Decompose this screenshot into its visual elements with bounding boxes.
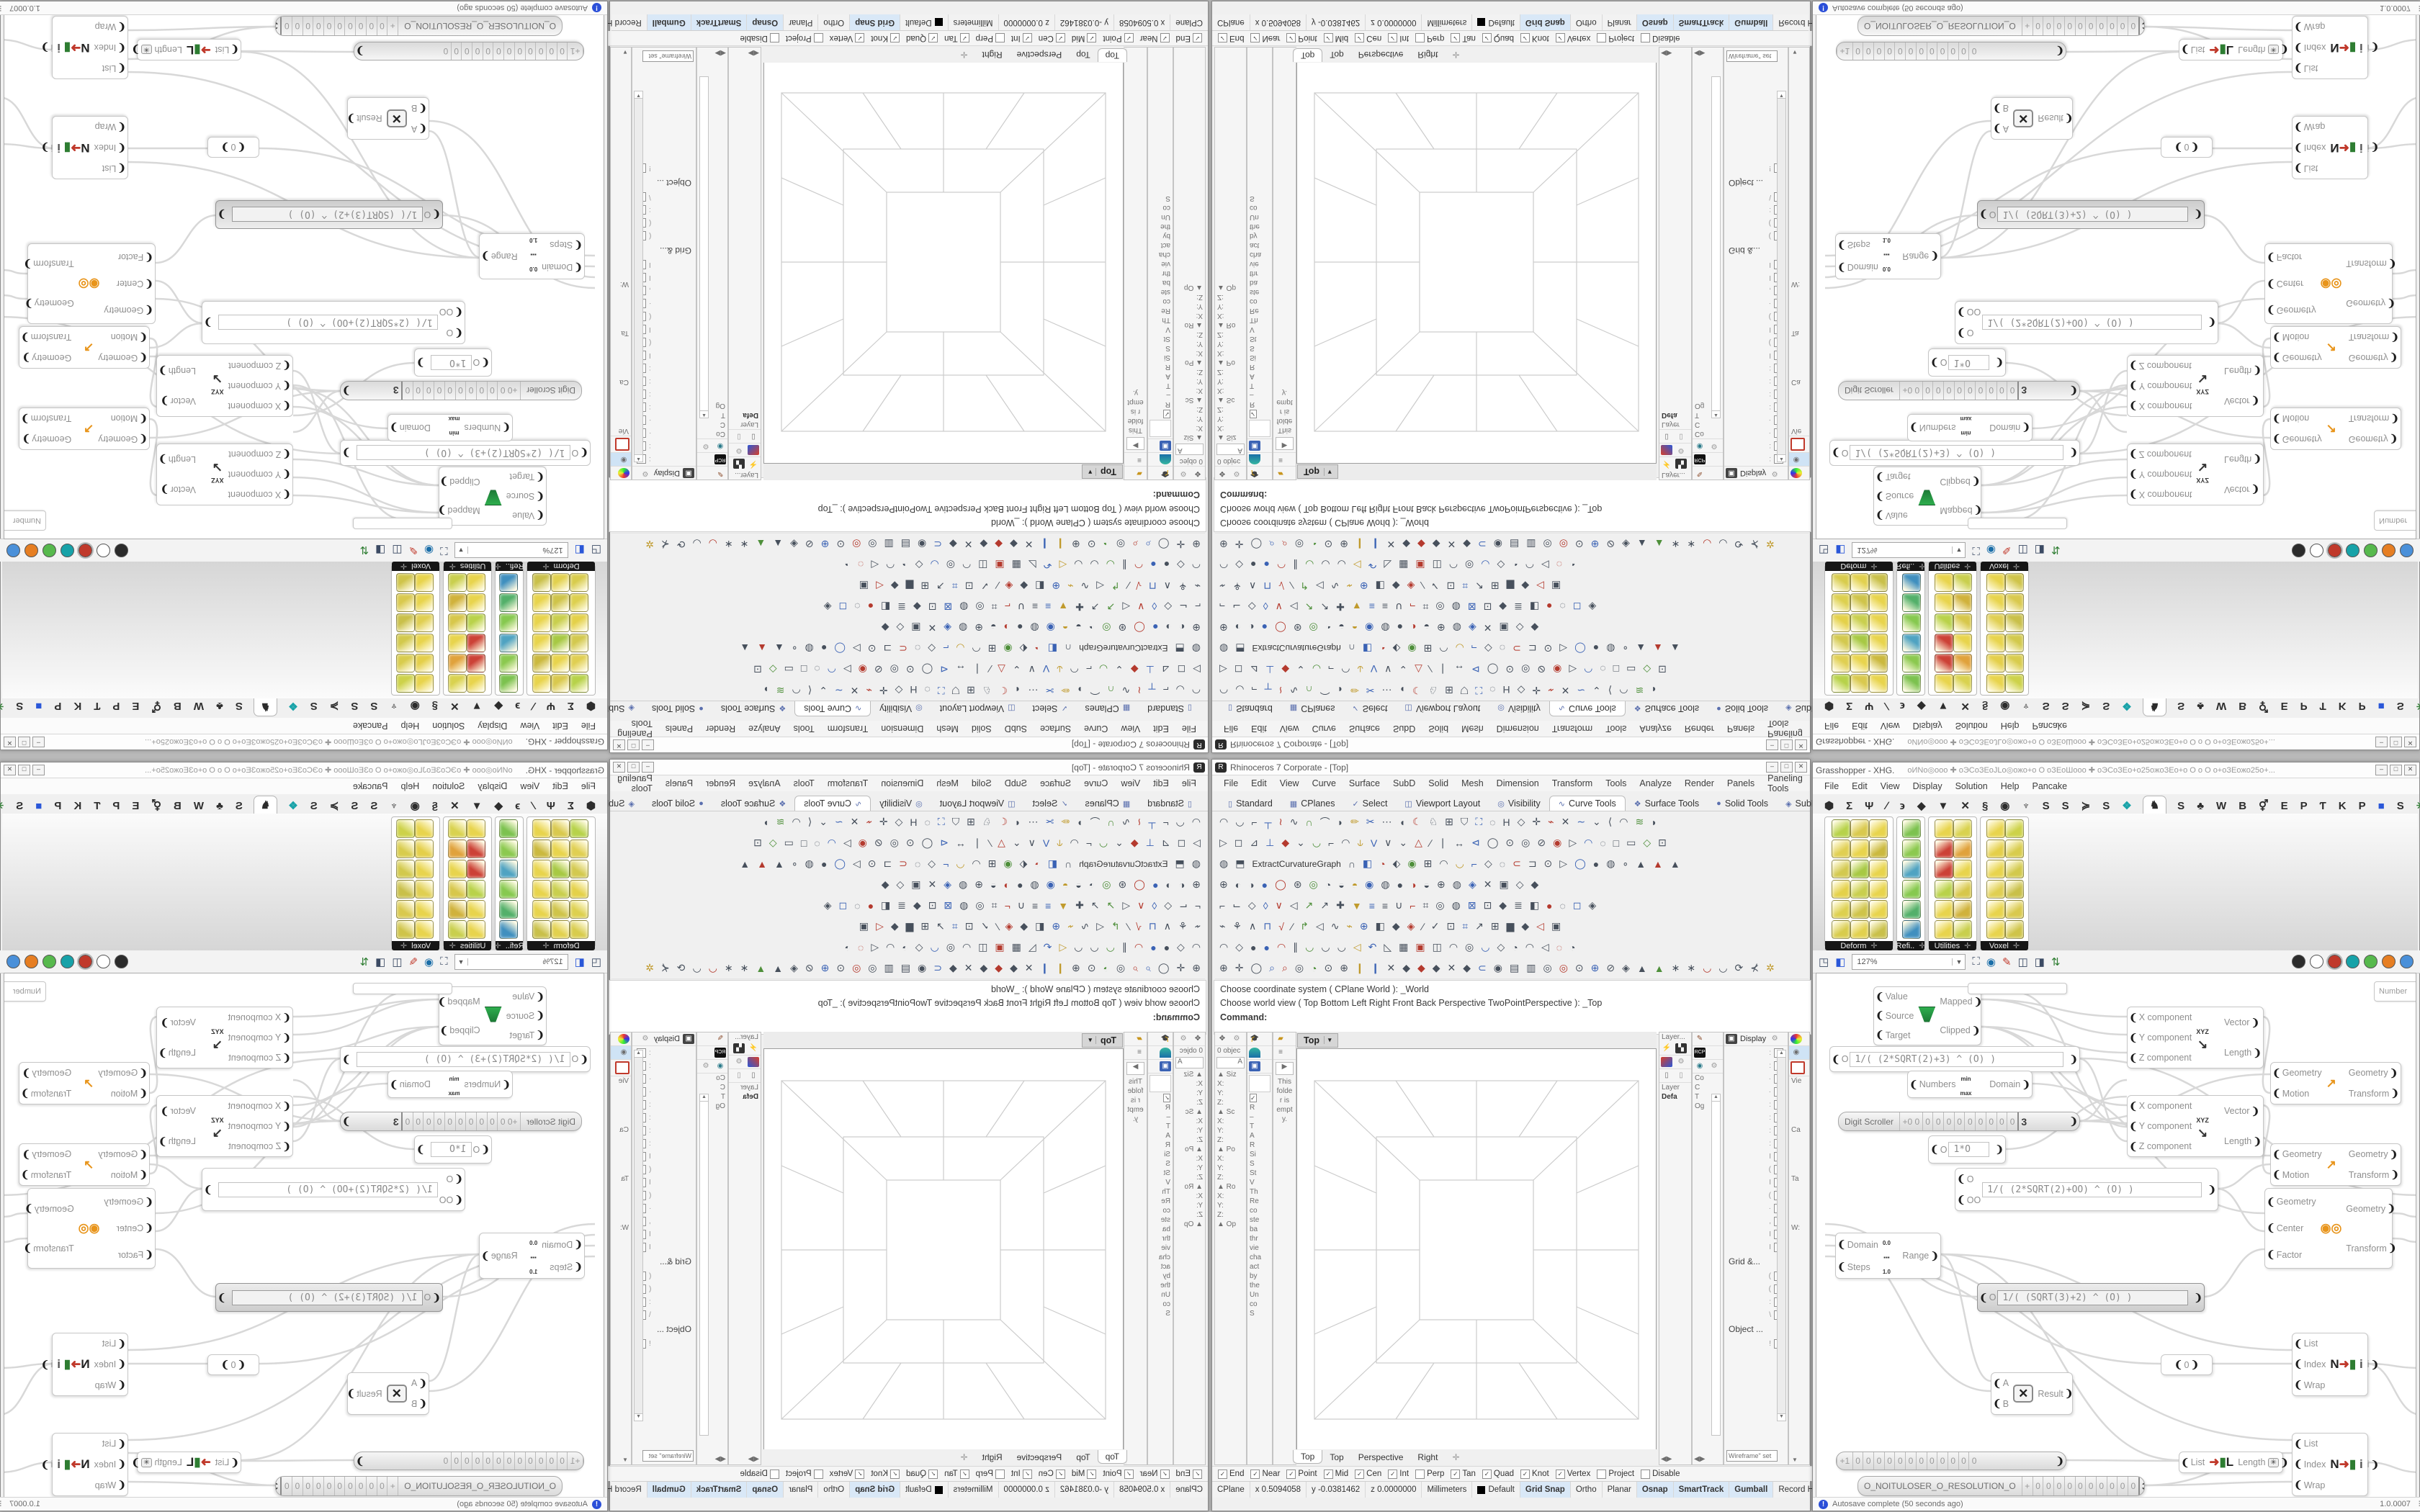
menu-item[interactable]: View (1875, 719, 1906, 732)
palette-group-label[interactable]: Utilities✛ (444, 941, 491, 950)
window-button[interactable]: ✕ (2404, 765, 2416, 775)
input-port[interactable]: Geometry (98, 1149, 138, 1159)
toolbar-icon[interactable]: ▲ (1636, 643, 1646, 654)
toolbar-icon[interactable]: ⊙ (906, 663, 915, 675)
osnap-checkbox[interactable]: ✓ (960, 1470, 969, 1479)
component-icon[interactable] (1832, 920, 1850, 939)
rhino-titlebar[interactable]: R Rhinoceros 7 Corporate - [Top] –□✕ (610, 760, 1208, 775)
digit-cell[interactable]: 0 (1884, 1452, 1895, 1470)
input-port[interactable]: Index (94, 143, 117, 153)
sketch-icon[interactable]: ✎ (408, 544, 418, 557)
gh-tab[interactable]: Ƭ (92, 698, 102, 714)
toolbar-icon[interactable]: ◍ (1192, 642, 1201, 654)
component-icon[interactable] (1850, 613, 1869, 632)
gh-tab[interactable]: ■ (34, 798, 43, 814)
toolbar-icon[interactable]: ⋯ (1382, 816, 1392, 828)
toolbar-tab[interactable]: ✓Select (1343, 701, 1396, 716)
toolbar-icon[interactable]: ▼ (1058, 900, 1068, 912)
gh-tab[interactable]: ≽ (328, 698, 341, 714)
toolbar-icon[interactable]: ◠ (1219, 684, 1228, 696)
toolbar-icon[interactable]: ⊡ (1447, 920, 1456, 932)
toolbar-icon[interactable]: ◗ (1337, 816, 1343, 828)
toolbar-icon[interactable]: ❘ (973, 837, 982, 849)
digit-cell[interactable]: 0 (504, 1452, 515, 1470)
gh-tab[interactable]: ◆ (493, 798, 504, 814)
menu-item[interactable]: Curve (1307, 777, 1342, 790)
osnap-checkbox[interactable]: ✓ (1160, 34, 1170, 43)
digit-cell[interactable]: 0 (2043, 17, 2053, 35)
gh-node[interactable]: ❨X component❨Y component❨Z componentXYZ↘… (2127, 355, 2264, 417)
digit-cell[interactable]: 0 (2053, 1477, 2064, 1495)
gh-tab[interactable]: ▼ (470, 798, 484, 814)
input-port[interactable]: Index (2304, 1459, 2326, 1470)
toolbar-icon[interactable]: ◧ (881, 899, 890, 912)
status-segment[interactable]: CPlane (1212, 1482, 1250, 1498)
toolbar-icon[interactable]: ⛉ (952, 684, 960, 696)
toolbar-icon[interactable]: ◠ (1134, 941, 1143, 953)
toolbar-icon[interactable]: ⊞ (1491, 920, 1500, 932)
toolbar-icon[interactable]: ▲ (774, 858, 784, 870)
preview-eye-icon[interactable]: ◉ (424, 544, 434, 557)
palette-group-label[interactable]: Voxel✛ (1981, 941, 2028, 950)
toolbar-icon[interactable]: ◇ (1497, 559, 1505, 571)
gh-node-partial[interactable] (1968, 983, 2067, 994)
panel-scroll[interactable]: ◀▶ (715, 49, 726, 57)
toolbar-icon[interactable]: ⊡ (965, 580, 974, 592)
input-port[interactable]: Numbers (1919, 423, 1956, 433)
menu-item[interactable]: Analyze (743, 777, 786, 790)
toolbar-icon[interactable]: ◔ (1325, 622, 1331, 634)
gh-tab[interactable]: Ψ (545, 698, 557, 714)
toolbar-icon[interactable]: ⊡ (1658, 663, 1667, 675)
digit-cell[interactable]: 0 (462, 1452, 472, 1470)
toolbar-icon[interactable]: ⌙ (1232, 600, 1241, 613)
toolbar-tab[interactable]: ❖Surface Tools (1626, 796, 1708, 811)
gh-tab[interactable]: § (1981, 798, 1989, 814)
input-port[interactable]: Geometry (104, 1197, 143, 1207)
component-icon[interactable] (1832, 860, 1850, 878)
toolbar-icon[interactable]: ⌒ (1090, 683, 1100, 698)
preview-sphere-icon[interactable] (2328, 544, 2341, 557)
toolbar-icon[interactable]: ◔ (1103, 539, 1108, 550)
output-port[interactable]: Length (169, 366, 196, 376)
status-segment[interactable]: Default (1472, 14, 1520, 30)
gh-tab[interactable]: ≽ (2080, 698, 2092, 714)
gh-tab[interactable]: ∕ (1884, 698, 1889, 714)
component-icon[interactable] (415, 840, 434, 858)
gh-node-partial[interactable] (353, 983, 452, 994)
input-port[interactable]: X component (228, 401, 282, 411)
component-icon[interactable] (570, 920, 588, 939)
palette-group-label[interactable]: Refi..✛ (496, 941, 523, 950)
window-button[interactable]: – (32, 765, 45, 775)
zoom-select[interactable]: 127%▼ (1852, 954, 1966, 970)
toolbar-icon[interactable]: V (1371, 837, 1377, 849)
swatch-box[interactable] (1149, 1075, 1171, 1092)
gh-tab[interactable]: S (2396, 698, 2406, 714)
osnap-checkbox[interactable] (770, 1470, 779, 1479)
component-icon[interactable] (551, 840, 570, 858)
component-icon[interactable] (1869, 920, 1888, 939)
toolbar-icon[interactable]: ⬒ (1175, 642, 1185, 654)
toolbar-icon[interactable]: ∗ (740, 538, 749, 550)
menu-item[interactable]: View (1115, 722, 1146, 735)
component-icon[interactable] (448, 674, 467, 693)
toolbar-icon[interactable]: ♘ (1429, 684, 1438, 696)
viewport-top[interactable] (1296, 1048, 1657, 1450)
menu-item[interactable]: View (1274, 777, 1305, 790)
toolbar-icon[interactable]: ◗ (1077, 685, 1083, 696)
gh-tab[interactable]: K (72, 798, 83, 814)
digit-cell[interactable]: 0 (292, 1477, 303, 1495)
input-port[interactable]: List (2191, 45, 2205, 55)
toolbar-icon[interactable]: ⊙ (1505, 837, 1514, 849)
toolbar-icon[interactable]: ◑ (1248, 879, 1254, 891)
toolbar-icon[interactable]: ◯ (1134, 621, 1145, 634)
output-port[interactable]: Length (2238, 1457, 2265, 1467)
osnap-item[interactable]: ✓Tan (1451, 34, 1476, 43)
toolbar-tab[interactable]: ▯Standard (1139, 701, 1201, 716)
component-icon[interactable] (396, 573, 415, 592)
component-icon[interactable] (1902, 654, 1921, 672)
palette-group-label[interactable]: Refi..✛ (1897, 562, 1924, 571)
output-port[interactable]: Mapped (1940, 996, 1972, 1007)
digit-cell[interactable]: 0 (2053, 17, 2064, 35)
digit-cell[interactable]: 0 (557, 1452, 568, 1470)
toolbar-tab[interactable]: ▦CPlanes (1281, 796, 1344, 811)
boxedit-field[interactable]: A (1216, 444, 1245, 455)
toolbar-icon[interactable]: ⊂ (1512, 858, 1521, 870)
gh-node[interactable]: ❨X component❨Y component❨Z componentXYZ↘… (2127, 444, 2264, 505)
menu-item[interactable]: Dimension (1491, 777, 1545, 790)
input-port[interactable]: Motion (111, 1089, 138, 1099)
toolbar-icon[interactable]: ✕ (1025, 538, 1034, 550)
gh-titlebar[interactable]: Grasshopper - XHG. oИNo◎ooo ✚ oЭCoЗEoJLo… (1, 734, 607, 750)
toolbar-icon[interactable]: ◆ (1010, 538, 1018, 550)
toolbar-icon[interactable]: ◡ (1099, 837, 1108, 849)
component-icon[interactable] (396, 840, 415, 858)
component-icon[interactable] (2005, 920, 2024, 939)
toolbar-icon[interactable]: ◎ (1116, 538, 1125, 550)
layers-panel[interactable]: Layer... ⚡▚ ⚙ ▯▯ Layer Defa ◀▶ (1659, 1032, 1692, 1465)
gh-tab[interactable]: S (2041, 798, 2051, 814)
input-port[interactable]: Steps (1847, 240, 1870, 251)
toolbar-icon[interactable]: ◎ (1295, 538, 1304, 550)
toolbar-icon[interactable]: ⊥ (1265, 837, 1274, 849)
status-segment[interactable]: Planar (1603, 1482, 1637, 1498)
toolbar-icon[interactable]: ◆ (1020, 580, 1028, 592)
gh-tab[interactable]: ⚥ (150, 698, 163, 714)
camera-widget-icon[interactable]: ◫ (2018, 544, 2028, 557)
toolbar-icon[interactable]: ⊕ (1192, 962, 1201, 974)
preview-sphere-icon[interactable] (2292, 955, 2305, 968)
toolbar-icon[interactable]: ◓ (1352, 879, 1358, 891)
component-icon[interactable] (1869, 593, 1888, 612)
digit-cell[interactable]: 0 (462, 42, 472, 60)
digit-cell[interactable]: 0 (1916, 1452, 1927, 1470)
component-icon[interactable] (1986, 654, 2005, 672)
output-port[interactable]: Range (1902, 1251, 1929, 1261)
osnap-item[interactable]: ✓Near (1140, 34, 1170, 43)
toolbar-icon[interactable]: ◠ (1219, 941, 1228, 953)
toolbar-icon[interactable]: ⌐ (943, 858, 949, 870)
toolbar-icon[interactable]: ◌ (1489, 685, 1495, 696)
menu-item[interactable]: Solid (966, 722, 998, 735)
toolbar-icon[interactable]: ◑ (1003, 879, 1009, 891)
osnap-item[interactable]: ✓Tan (944, 34, 969, 43)
rhino-titlebar[interactable]: R Rhinoceros 7 Corporate - [Top] –□✕ (1212, 760, 1810, 775)
component-icon[interactable] (1986, 573, 2005, 592)
toolbar-icon[interactable]: ✕ (928, 621, 937, 634)
component-icon[interactable] (1953, 593, 1972, 612)
toolbar-icon[interactable]: ✏ (1350, 816, 1359, 828)
toolbar-icon[interactable]: ◎ (868, 538, 877, 550)
toolbar-icon[interactable]: ◠ (886, 559, 895, 571)
preview-sphere-icon[interactable] (115, 544, 128, 557)
gh-node[interactable]: ❨O1*O❩ (1928, 1135, 2006, 1164)
toolbar-icon[interactable]: ◐ (1179, 879, 1185, 891)
osnap-checkbox[interactable] (770, 34, 779, 43)
preview-sphere-icon[interactable] (2382, 955, 2396, 968)
viewport-tab-right[interactable]: Right (1410, 1451, 1445, 1464)
toolbar-tab[interactable]: ◫Viewport Layout (1396, 701, 1489, 716)
menu-item[interactable]: Tools (788, 722, 820, 735)
command-history[interactable]: Choose coordinate system ( CPlane World … (1214, 980, 1811, 1035)
toolbar-icon[interactable]: ◡ (1090, 941, 1098, 953)
toolbar-icon[interactable]: ▭ (784, 837, 794, 849)
osnap-item[interactable]: ✓End (1218, 34, 1244, 43)
gh-node[interactable]: ❨O1/( (2*SQRT(2)+3) ^ (O) )❩ (340, 440, 591, 466)
component-icon[interactable] (1902, 573, 1921, 592)
component-icon[interactable] (532, 593, 551, 612)
component-icon[interactable] (532, 654, 551, 672)
input-port[interactable]: Geometry (104, 305, 143, 315)
input-port[interactable]: Z component (228, 449, 281, 459)
component-icon[interactable] (551, 593, 570, 612)
toolbar-icon[interactable]: ◓ (1062, 879, 1068, 891)
preview-sphere-icon[interactable] (2364, 955, 2378, 968)
component-icon[interactable] (2005, 654, 2024, 672)
gh-node[interactable]: ❨List❨Index❨WrapN➜▮ ii❩ (2292, 1433, 2368, 1496)
toolbar-icon[interactable]: ◁ (1122, 899, 1130, 912)
gh-node[interactable]: ❨NumbersminmaxDomain❩ (387, 414, 513, 441)
component-icon[interactable] (2005, 613, 2024, 632)
component-icon[interactable] (467, 634, 485, 652)
toolbar-tab[interactable]: ❖Surface Tools (712, 701, 794, 716)
toolbar-icon[interactable]: ⌁ (1195, 580, 1201, 592)
input-port[interactable]: O (447, 328, 454, 338)
osnap-item[interactable]: ✓Int (1388, 1470, 1409, 1479)
toolbar-icon[interactable]: ⊕ (1192, 878, 1201, 891)
toolbar-icon[interactable]: ❙ (1056, 962, 1065, 974)
toolbar-icon[interactable]: ⊐ (1528, 642, 1537, 654)
digit-cell[interactable]: 0 (413, 1112, 424, 1130)
toolbar-icon[interactable]: ◆ (891, 580, 899, 592)
toolbar-icon[interactable]: ≡ (1045, 601, 1051, 613)
toolbar-icon[interactable]: ⌄ (1592, 816, 1601, 828)
gh-tab[interactable]: P (2299, 698, 2309, 714)
osnap-checkbox[interactable] (995, 34, 1005, 43)
preview-eye-icon[interactable]: ◉ (424, 955, 434, 968)
component-icon[interactable] (570, 634, 588, 652)
gh-canvas[interactable]: ❨Value❨Source❨TargetMapped❩Clipped❩❨O1/(… (4, 14, 604, 539)
toolbar-icon[interactable]: ▼ (1058, 601, 1068, 613)
toolbar-icon[interactable]: ◎ (868, 962, 877, 974)
output-port[interactable]: Geometry (35, 1204, 74, 1214)
rhino-titlebar[interactable]: R Rhinoceros 7 Corporate - [Top] –□✕ (1212, 737, 1810, 752)
digit-cell[interactable]: 0 (472, 1452, 483, 1470)
toolbar-icon[interactable]: ⊿ (1162, 663, 1170, 675)
status-segment[interactable]: CPlane (1170, 14, 1208, 30)
toolbar-icon[interactable]: ↔ (956, 837, 966, 849)
toolbar-icon[interactable]: ∨ (1276, 600, 1283, 613)
boxedit-panel[interactable]: ✥⚙ 0 objec A ▲ SizX:Y:Z:▲ ScX:Y:Z:▲ PoX:… (1214, 47, 1247, 480)
toolbar-text-button[interactable]: ExtractCurvatureGraph (1252, 859, 1340, 869)
toolbar-icon[interactable]: ✲ (1766, 962, 1775, 974)
menu-item[interactable]: Dimension (875, 722, 929, 735)
toolbar-icon[interactable]: ♘ (982, 816, 992, 828)
toolbar-icon[interactable]: ✲ (1766, 538, 1775, 550)
output-port[interactable]: i (51, 1359, 53, 1369)
output-port[interactable]: Transform (2349, 1170, 2390, 1180)
toolbar-icon[interactable]: ∗ (740, 962, 749, 974)
toolbar-icon[interactable]: ◆ (995, 538, 1003, 550)
toolbar-icon[interactable]: ◠ (972, 858, 980, 870)
toolbar-icon[interactable]: ◔ (902, 559, 907, 571)
gh-tab[interactable]: Ψ (1863, 698, 1875, 714)
component-icon[interactable] (499, 880, 518, 899)
input-port[interactable]: Wrap (2304, 122, 2326, 132)
component-icon[interactable] (499, 654, 518, 672)
component-icon[interactable] (467, 819, 485, 838)
toolbar-icon[interactable]: ▷ (843, 663, 851, 675)
gh-node[interactable]: ❨Geometry❨Motion↗Geometry❩Transform❩ (2270, 326, 2401, 369)
toolbar-icon[interactable]: ◉ (1494, 538, 1502, 550)
input-port[interactable]: Motion (2282, 1089, 2310, 1099)
layers-tab[interactable]: Layer... (1659, 1032, 1691, 1042)
osnap-checkbox[interactable] (1641, 1470, 1650, 1479)
input-port[interactable]: X component (2139, 1101, 2192, 1111)
toolbar-icon[interactable]: ∪ (1018, 600, 1025, 613)
component-icon[interactable] (1953, 880, 1972, 899)
toolbar-icon[interactable]: ◎ (1102, 878, 1111, 891)
preview-sphere-icon[interactable] (115, 955, 128, 968)
component-icon[interactable] (570, 819, 588, 838)
component-icon[interactable] (570, 654, 588, 672)
osnap-checkbox[interactable] (1415, 1470, 1425, 1479)
toolbar-icon[interactable]: ⊙ (1088, 962, 1096, 974)
camera-widget-icon[interactable]: ◫ (392, 955, 402, 968)
gh-tab[interactable]: W (192, 798, 205, 814)
toolbar-icon[interactable]: ✓ (1431, 580, 1440, 592)
toolbar-icon[interactable]: ⌗ (1423, 899, 1429, 912)
menu-item[interactable]: Panels (660, 777, 699, 790)
component-icon[interactable] (467, 654, 485, 672)
toolbar-icon[interactable]: ◔ (1512, 942, 1518, 953)
output-port[interactable]: Domain (400, 423, 431, 433)
digit-cell[interactable]: 0 (403, 1112, 413, 1130)
toolbar-icon[interactable]: ◎ (852, 962, 861, 974)
toolbar-icon[interactable]: ⊙ (868, 858, 877, 870)
gh-tab[interactable]: § (431, 698, 439, 714)
palette-group-label[interactable]: Voxel✛ (1981, 562, 2028, 571)
toolbar-icon[interactable]: ● (1546, 601, 1552, 613)
viewport-dropdown-icon[interactable]: ▾ (1324, 468, 1332, 476)
toolbar-icon[interactable]: ⟳ (1735, 538, 1744, 550)
toolbar-icon[interactable]: ⊲ (940, 663, 949, 675)
toolbar-tab[interactable]: ●Solid Tools (643, 796, 712, 811)
output-port[interactable]: Range (491, 251, 518, 261)
osnap-item[interactable]: ✓Point (1103, 34, 1133, 43)
osnap-checkbox[interactable]: ✓ (1451, 1470, 1460, 1479)
status-segment[interactable]: Default (900, 14, 947, 30)
toolbar-icon[interactable]: ⊕ (974, 878, 983, 891)
toolbar-icon[interactable]: ≣ (1514, 899, 1523, 912)
toolbar-icon[interactable]: ◐ (1235, 879, 1241, 891)
toolbar-icon[interactable]: ◡ (1074, 559, 1083, 571)
toolbar-icon[interactable]: ◖ (1399, 816, 1405, 828)
toolbar-icon[interactable]: ◍ (1219, 642, 1228, 654)
status-segment[interactable]: CPlane (1212, 14, 1250, 30)
toolbar-icon[interactable]: ⊂ (933, 538, 942, 550)
toolbar-icon[interactable]: ∨ (1137, 600, 1144, 613)
preview-eye-icon[interactable]: ◉ (1986, 544, 1996, 557)
input-port[interactable]: X component (2139, 1012, 2192, 1022)
osnap-item[interactable]: Perp (1415, 1470, 1444, 1479)
toolbar-icon[interactable]: ◁ (1096, 920, 1104, 932)
component-icon[interactable] (1850, 654, 1869, 672)
input-port[interactable]: Wrap (95, 122, 117, 132)
toolbar-icon[interactable]: □ (1613, 664, 1619, 675)
toolbar-icon[interactable]: ∪ (1018, 899, 1025, 912)
input-port[interactable]: A (2003, 1378, 2009, 1388)
output-port[interactable]: Mapped (447, 505, 480, 516)
toolbar-icon[interactable]: ⊙ (836, 538, 845, 550)
toolbar-icon[interactable]: ≀ (1137, 816, 1141, 828)
menu-item[interactable]: Pancake (2026, 780, 2073, 793)
output-port[interactable]: Length (169, 1048, 196, 1058)
toolbar-icon[interactable]: ∿ (1081, 920, 1090, 932)
output-port[interactable]: Geometry (2346, 1204, 2385, 1214)
toolbar-icon[interactable]: ✕ (1484, 621, 1492, 634)
help-panel[interactable]: 🎓 ▣ ✓ R–TARSiSStVThRecostebathrviechaact… (1247, 47, 1273, 480)
input-port[interactable]: List (2304, 1338, 2318, 1349)
toolbar-icon[interactable]: ↗ (1320, 600, 1329, 613)
gh-tab[interactable]: K (2337, 698, 2348, 714)
toolbar-icon[interactable]: ▣ (1415, 941, 1425, 953)
input-port[interactable]: Geometry (2282, 434, 2322, 444)
toolbar-icon[interactable]: ◁ (1122, 600, 1130, 613)
gh-node[interactable]: ❨Value❨Source❨TargetMapped❩Clipped❩ (1873, 467, 1981, 526)
menu-item[interactable]: File (1176, 777, 1202, 790)
toolbar-icon[interactable]: ⊙ (836, 962, 845, 974)
gh-tab[interactable]: ◆ (493, 698, 504, 714)
menu-item[interactable]: SubD (1387, 722, 1421, 735)
status-segment[interactable]: Osnap (746, 1482, 783, 1498)
toolbar-icon[interactable]: ↗ (1475, 920, 1484, 932)
input-port[interactable]: B (411, 103, 417, 113)
help-panel[interactable]: 🎓 ▣ ✓ R–TARSiSStVThRecostebathrviechaact… (1147, 47, 1173, 480)
toolbar-icon[interactable]: ◡ (1074, 941, 1083, 953)
input-port[interactable]: Steps (550, 1262, 573, 1272)
osnap-checkbox[interactable]: ✓ (1087, 1470, 1096, 1479)
command-history[interactable]: Choose coordinate system ( CPlane World … (609, 980, 1206, 1035)
toolbar-icon[interactable]: H (1503, 816, 1510, 828)
toolbar-icon[interactable]: ↗ (1320, 899, 1329, 912)
toolbar-icon[interactable]: ▷ (1193, 663, 1201, 675)
toolbar-tab[interactable]: ∿Curve Tools (794, 796, 871, 811)
osnap-checkbox[interactable]: ✓ (1482, 34, 1492, 43)
